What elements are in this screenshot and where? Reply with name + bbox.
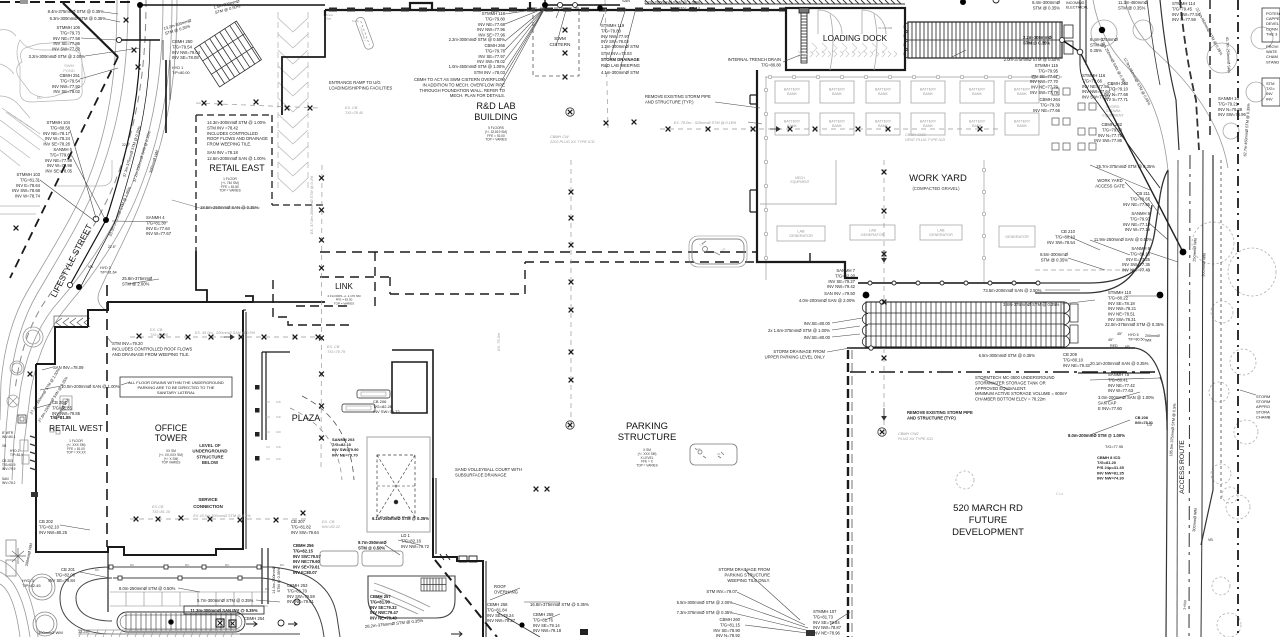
svg-text:CC: CC (266, 400, 270, 404)
svg-text:4.0m-200mmØ SAN @ 2.00%: 4.0m-200mmØ SAN @ 2.00% (799, 298, 855, 303)
svg-text:INV.SE=80.00: INV.SE=80.00 (804, 335, 831, 340)
svg-text:(COMPACTED GRAVEL): (COMPACTED GRAVEL) (912, 186, 960, 191)
svg-text:RED: RED (1110, 344, 1118, 348)
svg-text:6.3m-300mmØ STM @ 0.35%: 6.3m-300mmØ STM @ 0.35% (50, 16, 107, 21)
svg-text:OH DOOR: OH DOOR (878, 26, 893, 30)
svg-text:R&D LAB WEEPING: R&D LAB WEEPING (601, 63, 640, 68)
svg-text:VB: VB (88, 265, 93, 269)
svg-text:ICD: ICD (276, 400, 281, 404)
svg-text:STMMH 106T/G=79.73INV NE=77.58: STMMH 106T/G=79.73INV NE=77.58INV SE=77.… (52, 25, 80, 52)
svg-text:SWMPOND: SWMPOND (63, 63, 75, 73)
svg-text:FUTURE: FUTURE (969, 515, 1008, 526)
svg-text:TOWER: TOWER (155, 433, 188, 443)
svg-text:4.1m-300mmØ STM: 4.1m-300mmØ STM (601, 70, 639, 75)
svg-text:14.3m-300mmØSTM @ 0.35%: 14.3m-300mmØSTM @ 0.35% (272, 566, 281, 593)
svg-text:SAN INV.=78.09: SAN INV.=78.09 (53, 365, 84, 370)
svg-text:3.8m-375mmØ STM @ 0.35%: 3.8m-375mmØ STM @ 0.35% (1003, 302, 1060, 307)
svg-text:6.1m-250mmØ STM @ 0.35%: 6.1m-250mmØ STM @ 0.35% (372, 516, 429, 521)
svg-text:EX. 37.0m-300mmØ STM @ 0.4%: EX. 37.0m-300mmØ STM @ 0.4% (310, 175, 314, 234)
svg-text:3+000: 3+000 (1183, 600, 1188, 610)
svg-text:73.5m-200mmØ SAN @ 2.50%: 73.5m-200mmØ SAN @ 2.50% (983, 288, 1042, 293)
svg-text:STMMH 118T/G=79.80INV NE=77.68: STMMH 118T/G=79.80INV NE=77.68INV NW=77.… (477, 11, 506, 38)
svg-text:BUILDING: BUILDING (474, 112, 517, 122)
svg-text:11.25°: 11.25° (78, 629, 90, 634)
svg-text:Temp: Temp (352, 19, 359, 23)
svg-text:SAN INV =79.50: SAN INV =79.50 (824, 291, 856, 296)
svg-text:8.0m-200mmØ STM @ 1.00%: 8.0m-200mmØ STM @ 1.00% (1068, 433, 1125, 438)
svg-text:STORMSTORMAPPROSTORACHAMB: STORMSTORMAPPROSTORACHAMB (1256, 394, 1271, 419)
svg-text:3.2m-300mmØ STM @ 2.00%: 3.2m-300mmØ STM @ 2.00% (29, 54, 86, 59)
svg-text:8.4m-300mmØSTM @ 0.35%: 8.4m-300mmØSTM @ 0.35% (1032, 0, 1061, 10)
svg-text:EX. 78.0m - 525mmØ STM @ 0.18%: EX. 78.0m - 525mmØ STM @ 0.18% (674, 121, 737, 125)
svg-text:PROVIWATECHAMSTAND: PROVIWATECHAMSTAND (1266, 44, 1279, 64)
svg-text:ICD: ICD (276, 415, 281, 419)
svg-text:WORK YARD: WORK YARD (909, 173, 967, 184)
svg-text:DC: DC (37, 96, 42, 100)
svg-text:ACCESS ROUTE: ACCESS ROUTE (1179, 440, 1186, 494)
svg-text:10.0m-200mmØ SAN @ 1.00%: 10.0m-200mmØ SAN @ 1.00% (61, 384, 120, 389)
svg-text:8.4m-375mmØ STM @ 0.35%: 8.4m-375mmØ STM @ 0.35% (48, 9, 105, 14)
svg-text:GENERATOR: GENERATOR (1005, 235, 1029, 239)
svg-text:PLAZA: PLAZA (292, 413, 321, 423)
svg-text:7.3m-375mmØ STM @ 0.35%: 7.3m-375mmØ STM @ 0.35% (677, 610, 734, 615)
svg-text:C0: C0 (1147, 423, 1152, 427)
svg-text:2.0m-375mmØ STM @ 0.50%: 2.0m-375mmØ STM @ 0.50% (1004, 57, 1061, 62)
svg-text:DEVELOPMENT: DEVELOPMENT (952, 527, 1024, 538)
svg-text:VB: VB (2, 444, 6, 448)
svg-text:45°: 45° (1108, 338, 1114, 342)
svg-text:INV.SE=80.00: INV.SE=80.00 (804, 321, 831, 326)
svg-text:2.2m-300mmØ STM @ 0.50%: 2.2m-300mmØ STM @ 0.50% (449, 37, 506, 42)
svg-text:STRUCTURE: STRUCTURE (618, 432, 677, 443)
svg-text:STORM DRAINAGE FROMUPPER PARKI: STORM DRAINAGE FROMUPPER PARKING LEVEL O… (765, 349, 826, 359)
svg-text:RETAIL EAST: RETAIL EAST (209, 163, 265, 173)
svg-text:OFFICE: OFFICE (155, 423, 187, 433)
svg-text:520 MARCH RD: 520 MARCH RD (953, 503, 1023, 514)
svg-text:R&D LAB: R&D LAB (476, 101, 515, 111)
svg-text:STMMH 103T/G=81.31INV E=78.64I: STMMH 103T/G=81.31INV E=78.64INV SW=78.6… (12, 172, 40, 199)
svg-text:VB: VB (1208, 538, 1213, 542)
svg-text:12.6m-200mmØ SAN @ 1.00%: 12.6m-200mmØ SAN @ 1.00% (207, 156, 266, 161)
svg-text:T/G=77.95: T/G=77.95 (1105, 445, 1123, 449)
svg-text:5.5m-300mmØ STM @ 2.00%: 5.5m-300mmØ STM @ 2.00% (677, 600, 734, 605)
svg-text:CC: CC (266, 445, 270, 449)
svg-text:8.5m-300mmØSTM @ 0.35%: 8.5m-300mmØSTM @ 0.35% (1040, 252, 1069, 262)
svg-text:ICD: ICD (276, 445, 281, 449)
svg-text:25.8m-375mmØSTM @ 2.00%: 25.8m-375mmØSTM @ 2.00% (122, 276, 153, 286)
svg-text:STM INV.=78.03: STM INV.=78.03 (601, 51, 632, 56)
svg-text:STM INV.=79.07: STM INV.=79.07 (706, 589, 737, 594)
svg-text:20.1m-200mmØ SAN @ 0.35%: 20.1m-200mmØ SAN @ 0.35% (1090, 361, 1149, 366)
svg-text:EX 43.0m-300mmØ STM @ 0.5%: EX 43.0m-300mmØ STM @ 0.5% (193, 514, 251, 518)
svg-text:C Lo: C Lo (1056, 492, 1063, 496)
svg-text:STMMH 104T/G=80.58INV NE=78.17: STMMH 104T/G=80.58INV NE=78.17INV W=78.2… (43, 120, 71, 147)
svg-text:T/G=81.85: T/G=81.85 (50, 415, 71, 420)
svg-text:SAN INV =78.18: SAN INV =78.18 (207, 150, 239, 155)
svg-text:EX. 45.0m - 200mmØ SAN @ 0.5%: EX. 45.0m - 200mmØ SAN @ 0.5% (195, 331, 256, 335)
svg-text:1.0m-450mmØ STM @ 1.00%: 1.0m-450mmØ STM @ 1.00% (449, 64, 506, 69)
svg-text:LS: LS (697, 447, 701, 451)
svg-text:LS: LS (717, 452, 721, 456)
svg-text:LOADING DOCK: LOADING DOCK (823, 33, 888, 43)
svg-text:CC: CC (266, 430, 270, 434)
svg-text:16.8m-375mmØ STM @ 0.35%: 16.8m-375mmØ STM @ 0.35% (530, 602, 589, 607)
svg-text:22.5°: 22.5° (122, 143, 131, 147)
svg-text:SERVICE: SERVICE (198, 497, 217, 502)
svg-text:2.2m-300mmØSTM @ 0.35%: 2.2m-300mmØSTM @ 0.35% (1023, 35, 1052, 45)
svg-text:2x 1.6m-375mmØ STM @ 1.00%: 2x 1.6m-375mmØ STM @ 1.00% (768, 328, 830, 333)
svg-text:STORM DRAINAGE: STORM DRAINAGE (601, 57, 640, 62)
svg-text:5.7m-300mmØ STM @ 0.35%: 5.7m-300mmØ STM @ 0.35% (197, 598, 254, 603)
svg-text:45°: 45° (1117, 332, 1123, 336)
svg-text:8.0m-250mmØ STM @ 0.50%: 8.0m-250mmØ STM @ 0.50% (119, 586, 176, 591)
svg-text:22.0m-375mmØ STM @ 0.35%: 22.0m-375mmØ STM @ 0.35% (1105, 322, 1164, 327)
svg-text:RETAIL WEST: RETAIL WEST (49, 424, 103, 433)
svg-text:VB: VB (1125, 345, 1130, 349)
svg-text:ICD: ICD (276, 457, 281, 461)
svg-text:22.5°: 22.5° (108, 245, 117, 249)
svg-text:1.2m-300mmØ STM: 1.2m-300mmØ STM (601, 44, 639, 49)
svg-text:18.5m-250mmØ SAN @ 0.35%: 18.5m-250mmØ SAN @ 0.35% (200, 205, 259, 210)
svg-text:1.2m-200mmØ SAN @ 1.00%: 1.2m-200mmØ SAN @ 1.00% (644, 0, 700, 5)
svg-text:11.3m-450mmØSTM @ 0.35%: 11.3m-450mmØSTM @ 0.35% (1118, 0, 1149, 10)
svg-text:EX. 75.0m: EX. 75.0m (497, 333, 501, 351)
svg-text:11.3m-300mmØ SAN INV @ 0.35%: 11.3m-300mmØ SAN INV @ 0.35% (190, 608, 257, 613)
svg-text:25.7m-375mmØ STM @ 0.35%: 25.7m-375mmØ STM @ 0.35% (1096, 164, 1155, 169)
svg-text:11.9m-250mmØ SAN @ 0.50%: 11.9m-250mmØ SAN @ 0.50% (1094, 237, 1152, 242)
svg-text:CONNECTION: CONNECTION (193, 504, 223, 509)
svg-text:CC: CC (266, 415, 270, 419)
svg-text:9.7m-250mmØSTM @ 0.50%: 9.7m-250mmØSTM @ 0.50% (358, 540, 387, 550)
svg-text:CC: CC (266, 457, 270, 461)
svg-text:LINK: LINK (335, 282, 353, 291)
svg-text:ICD: ICD (276, 430, 281, 434)
svg-text:WORK YARDACCESS GATE: WORK YARDACCESS GATE (1095, 178, 1125, 188)
svg-text:300mmØ WM: 300mmØ WM (38, 630, 63, 635)
svg-text:SAN INV.=77.14: SAN INV.=77.14 (670, 6, 701, 11)
svg-text:6.5m-300mmØ STM @ 0.35%: 6.5m-300mmØ STM @ 0.35% (979, 353, 1036, 358)
svg-text:SAN: SAN (622, 0, 630, 3)
svg-text:PARKING: PARKING (626, 421, 668, 432)
svg-text:5 FLOORS(+/- 32,819 SM)FFE = 9: 5 FLOORS(+/- 32,819 SM)FFE = 92.00TOP = … (485, 126, 507, 142)
svg-text:STM INV =78.03: STM INV =78.03 (474, 70, 506, 75)
svg-text:CBMH 254: CBMH 254 (244, 616, 265, 621)
svg-text:STMMH 115T/G=79.95INV SE=77.67: STMMH 115T/G=79.95INV SE=77.67INV NW=77.… (1030, 63, 1059, 95)
